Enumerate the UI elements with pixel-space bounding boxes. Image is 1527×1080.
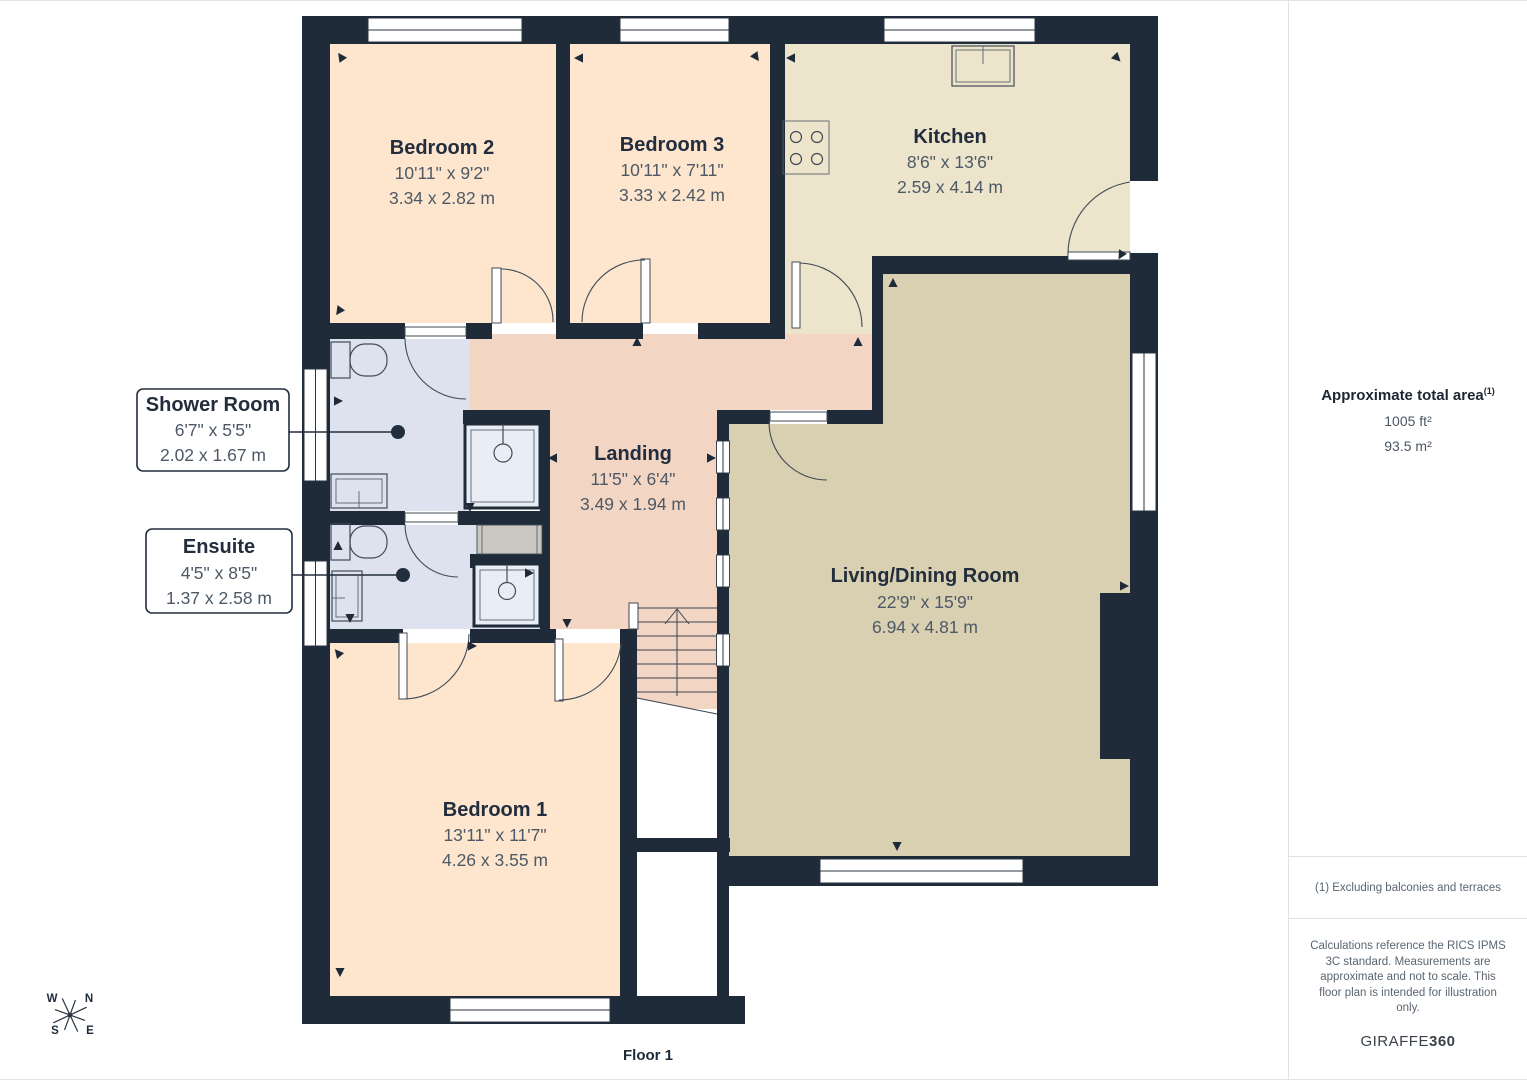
- floor-label: Floor 1: [623, 1047, 673, 1064]
- room-title: Kitchen: [913, 126, 986, 148]
- room-dim-imperial: 11'5" x 6'4": [591, 469, 676, 489]
- leader-dot: [396, 568, 410, 582]
- room-dim-metric: 3.33 x 2.42 m: [619, 185, 725, 205]
- window-icon: [884, 18, 1035, 42]
- window-icon: [1132, 353, 1156, 511]
- window-icon: [620, 18, 729, 42]
- disclaimer-text: Calculations reference the RICS IPMS 3C …: [1310, 939, 1506, 1017]
- room-title: Shower Room: [146, 394, 280, 416]
- room-dim-metric: 1.37 x 2.58 m: [166, 588, 272, 608]
- leader-dot: [391, 425, 405, 439]
- total-area-ft: 1005 ft²: [1289, 413, 1527, 429]
- room-dim-imperial: 8'6" x 13'6": [907, 152, 993, 172]
- room-dim-imperial: 13'11" x 11'7": [443, 825, 546, 845]
- info-sidebar: Approximate total area(1) 1005 ft² 93.5 …: [1288, 1, 1527, 1080]
- cupboard-icon: [477, 525, 542, 554]
- room-dim-metric: 3.34 x 2.82 m: [389, 188, 495, 208]
- room-title: Ensuite: [183, 536, 255, 558]
- room-dim-metric: 2.59 x 4.14 m: [897, 177, 1003, 197]
- room-title: Bedroom 1: [443, 799, 547, 821]
- window-icon: [368, 18, 522, 42]
- total-area-footnote-ref: (1): [1484, 386, 1495, 396]
- room-title: Bedroom 2: [390, 137, 494, 159]
- compass-s: S: [51, 1025, 59, 1037]
- room-label-bedroom-1: Bedroom 1 13'11" x 11'7" 4.26 x 3.55 m: [442, 799, 548, 870]
- window-icon: [450, 998, 610, 1022]
- compass-e: E: [86, 1025, 94, 1037]
- brand-bold: 360: [1429, 1033, 1456, 1050]
- floorplan-page: Bedroom 2 10'11" x 9'2" 3.34 x 2.82 m Be…: [0, 0, 1527, 1080]
- room-dim-metric: 4.26 x 3.55 m: [442, 850, 548, 870]
- room-dim-metric: 3.49 x 1.94 m: [580, 494, 686, 514]
- compass-w: W: [47, 993, 58, 1005]
- room-title: Bedroom 3: [620, 134, 724, 156]
- compass-icon: W N S E: [47, 993, 95, 1037]
- shower-icon: [465, 424, 540, 508]
- chimney-breast: [1100, 593, 1130, 759]
- room-dim-imperial: 10'11" x 7'11": [620, 160, 723, 180]
- room-bedroom-2: [330, 44, 556, 323]
- room-dim-imperial: 6'7" x 5'5": [175, 420, 252, 440]
- room-dim-imperial: 4'5" x 8'5": [181, 563, 258, 583]
- room-landing-strip: [466, 334, 872, 410]
- total-area-title-text: Approximate total area: [1321, 387, 1484, 404]
- brand-regular: GIRAFFE: [1360, 1033, 1429, 1050]
- floorplan-drawing: Bedroom 2 10'11" x 9'2" 3.34 x 2.82 m Be…: [0, 1, 1290, 1080]
- room-label-landing: Landing 11'5" x 6'4" 3.49 x 1.94 m: [580, 443, 686, 514]
- disclaimer-block: Calculations reference the RICS IPMS 3C …: [1289, 918, 1527, 1050]
- room-label-bedroom-2: Bedroom 2 10'11" x 9'2" 3.34 x 2.82 m: [389, 137, 495, 208]
- room-bedroom-3: [570, 44, 770, 323]
- window-icon: [820, 859, 1023, 883]
- footnote: (1) Excluding balconies and terraces: [1289, 856, 1527, 918]
- room-dim-imperial: 10'11" x 9'2": [395, 163, 490, 183]
- giraffe360-logo: GIRAFFE360: [1289, 1033, 1527, 1050]
- room-dim-imperial: 22'9" x 15'9": [877, 592, 973, 612]
- room-dim-metric: 2.02 x 1.67 m: [160, 445, 266, 465]
- total-area-title: Approximate total area(1): [1289, 386, 1527, 404]
- window-icon: [304, 561, 327, 646]
- room-dim-metric: 6.94 x 4.81 m: [872, 617, 978, 637]
- window-icon: [304, 369, 327, 481]
- compass-n: N: [85, 993, 93, 1005]
- total-area-block: Approximate total area(1) 1005 ft² 93.5 …: [1289, 386, 1527, 454]
- room-label-bedroom-3: Bedroom 3 10'11" x 7'11" 3.33 x 2.42 m: [619, 134, 725, 205]
- room-title: Landing: [594, 443, 672, 465]
- total-area-m: 93.5 m²: [1289, 438, 1527, 454]
- room-title: Living/Dining Room: [831, 565, 1020, 587]
